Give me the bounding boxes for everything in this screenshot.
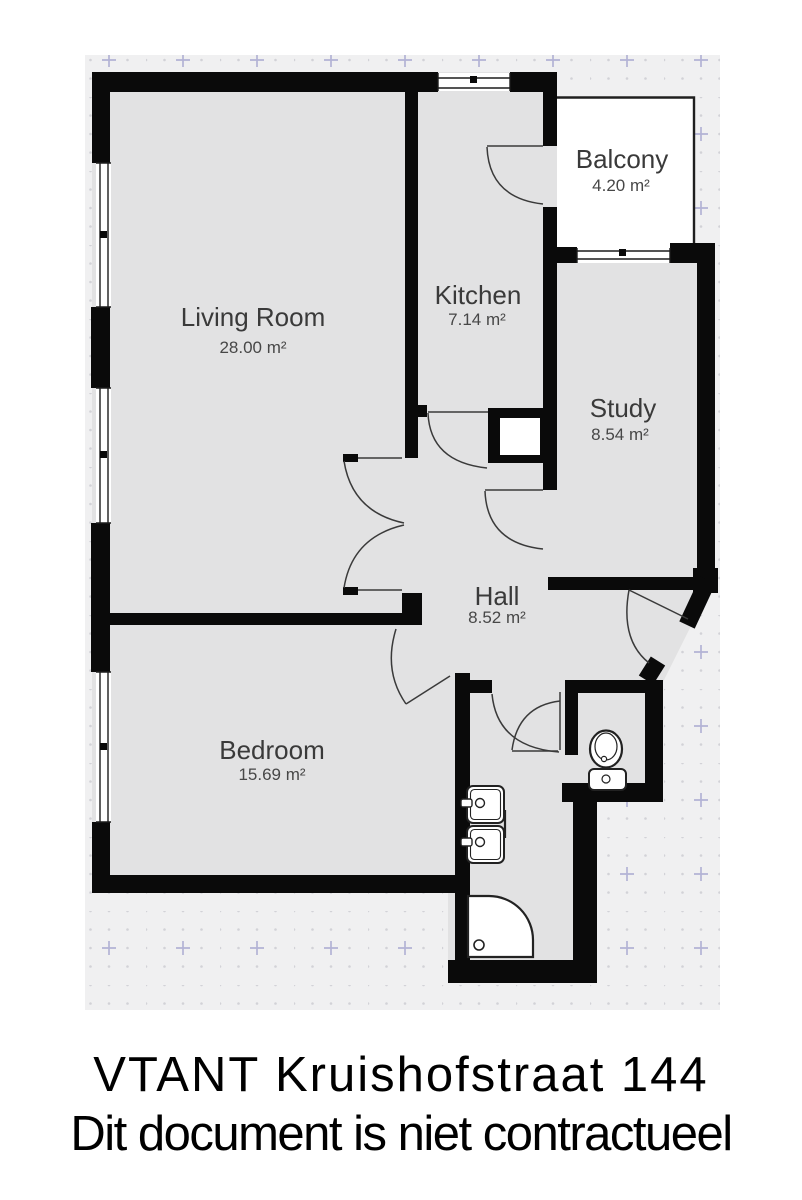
window-living-2 — [96, 388, 111, 523]
room-area-living: 28.00 m² — [219, 338, 286, 357]
room-area-hall: 8.52 m² — [468, 608, 526, 627]
window-bedroom — [96, 672, 111, 822]
room-area-bedroom: 15.69 m² — [238, 765, 305, 784]
sink-2 — [461, 826, 504, 863]
window-kitchen — [438, 73, 510, 91]
room-label-kitchen: Kitchen — [435, 280, 522, 310]
window-study — [577, 248, 670, 263]
room-label-hall: Hall — [475, 581, 520, 611]
room-label-living: Living Room — [181, 302, 326, 332]
footer-disclaimer: Dit document is niet contractueel — [0, 1104, 802, 1164]
room-label-study: Study — [590, 393, 657, 423]
sink-1 — [461, 786, 504, 823]
window-living-1 — [96, 163, 111, 307]
plan-footer: VTANT Kruishofstraat 144 Dit document is… — [0, 1046, 802, 1164]
room-area-study: 8.54 m² — [591, 425, 649, 444]
floor-plan-page: Living Room 28.00 m² Kitchen 7.14 m² Bal… — [0, 0, 802, 1200]
room-area-balcony: 4.20 m² — [592, 176, 650, 195]
room-balcony-floor — [557, 96, 695, 252]
footer-title: VTANT Kruishofstraat 144 — [0, 1046, 802, 1104]
room-label-bedroom: Bedroom — [219, 735, 325, 765]
room-label-balcony: Balcony — [576, 144, 669, 174]
floor-plan: Living Room 28.00 m² Kitchen 7.14 m² Bal… — [0, 0, 802, 1030]
duct-shaft — [500, 418, 540, 455]
room-area-kitchen: 7.14 m² — [448, 310, 506, 329]
